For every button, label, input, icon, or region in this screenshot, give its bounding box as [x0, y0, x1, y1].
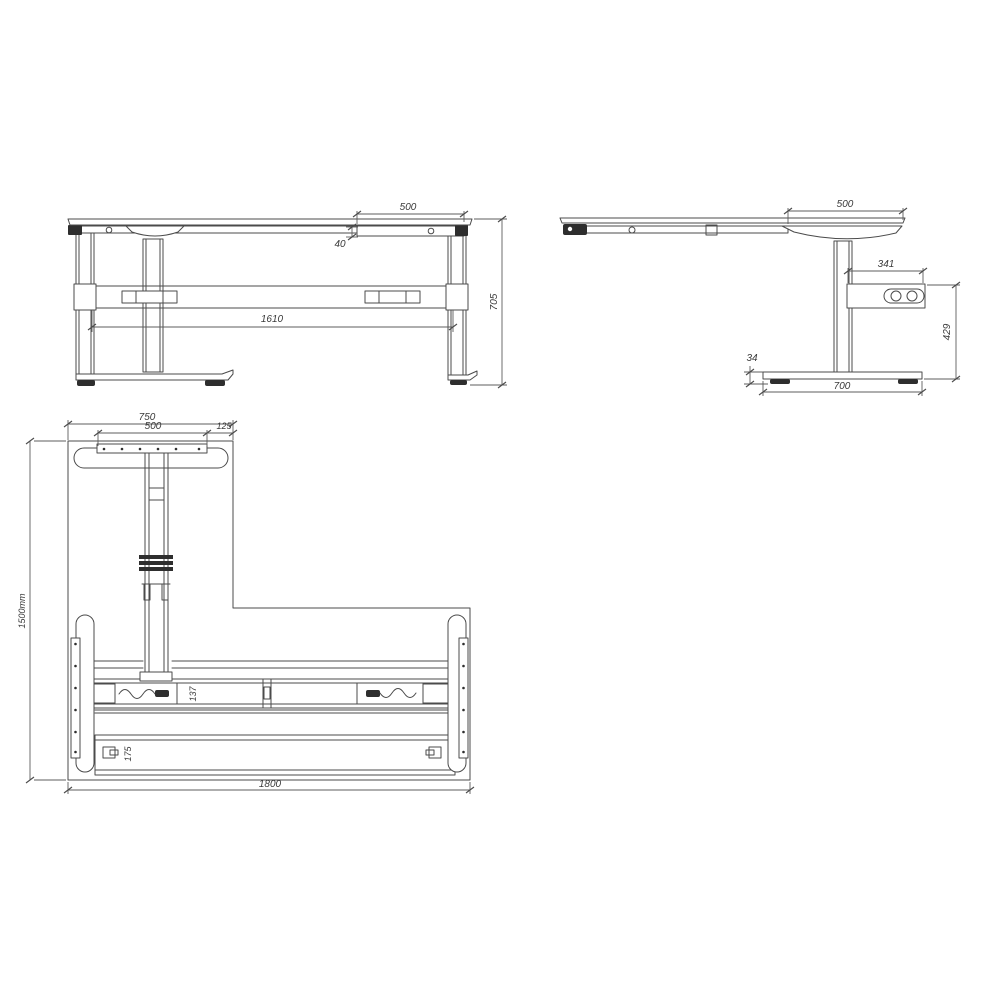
- dim-plan-beam-depth: 137: [188, 686, 198, 702]
- dim-front-top-section: 500: [400, 202, 417, 213]
- dim-side-foot-height: 34: [746, 353, 758, 364]
- front-feet: [76, 370, 477, 386]
- power-plug-icon: [155, 690, 169, 697]
- screw-hole-icon: [106, 227, 112, 233]
- mounting-bracket-icon: [68, 225, 82, 235]
- screw-hole-icon: [428, 228, 434, 234]
- side-view: 500 341 429 34 700: [560, 199, 960, 396]
- mounting-bracket-icon: [455, 224, 468, 236]
- column-bracket-icon: [139, 555, 173, 571]
- dim-side-top-overhang: 500: [837, 199, 854, 210]
- column-base-plate: [140, 672, 172, 681]
- plan-return-foot: [74, 444, 228, 468]
- dim-plan-edge-offset: 125: [216, 421, 232, 431]
- foot-pad-icon: [77, 380, 95, 386]
- foot-pad-icon: [450, 380, 467, 385]
- leg-top-plate: [782, 226, 902, 239]
- dim-plan-overall-width: 1800: [259, 779, 282, 790]
- tabletop: [68, 219, 472, 225]
- leg-top-plate: [126, 226, 184, 236]
- plan-return-column: [139, 453, 173, 676]
- foot-mounting-plate: [459, 638, 468, 758]
- front-view: 500 40 1610 705: [68, 202, 507, 388]
- dim-front-leg-span: 1610: [261, 314, 284, 325]
- control-box: [847, 284, 925, 308]
- dim-plan-overall-depth: 1500mm: [17, 593, 27, 629]
- side-frame-rail: [563, 224, 902, 239]
- dim-side-box-to-floor: 429: [942, 323, 953, 340]
- mounting-bracket-icon: [563, 224, 587, 235]
- dim-plan-foot-plate-width: 500: [145, 421, 162, 432]
- technical-drawing-canvas: 500 40 1610 705: [0, 0, 1000, 1000]
- plan-left-foot: [71, 615, 94, 772]
- dim-side-control-box: 341: [878, 259, 895, 270]
- tabletop: [560, 218, 905, 223]
- power-plug-icon: [366, 690, 380, 697]
- plan-bottom-rail: [95, 735, 455, 775]
- dim-front-frame-height: 40: [334, 239, 346, 250]
- cable-clip-icon: [142, 584, 170, 600]
- front-frame-rail: [68, 224, 468, 236]
- foot-pad-icon: [205, 380, 225, 386]
- foot-mounting-plate: [71, 638, 80, 758]
- foot-pad-icon: [898, 379, 918, 384]
- dim-front-overall-height: 705: [489, 293, 500, 310]
- plan-support-rail: [94, 661, 452, 668]
- plan-main-beam: [80, 672, 458, 713]
- foot-pad-icon: [770, 379, 790, 384]
- dim-plan-rail-depth: 175: [123, 746, 133, 762]
- dim-side-foot-depth: 700: [834, 381, 851, 392]
- screw-hole-icon: [629, 227, 635, 233]
- plan-right-foot: [448, 615, 468, 772]
- screw-hole-icon: [568, 227, 572, 231]
- plan-view: 137 175: [17, 412, 474, 794]
- cable-tray-handle-icon: [122, 291, 177, 303]
- desktop-outline: [68, 441, 470, 780]
- cable-tray-handle-icon: [365, 291, 420, 303]
- foot-mounting-plate: [97, 444, 207, 453]
